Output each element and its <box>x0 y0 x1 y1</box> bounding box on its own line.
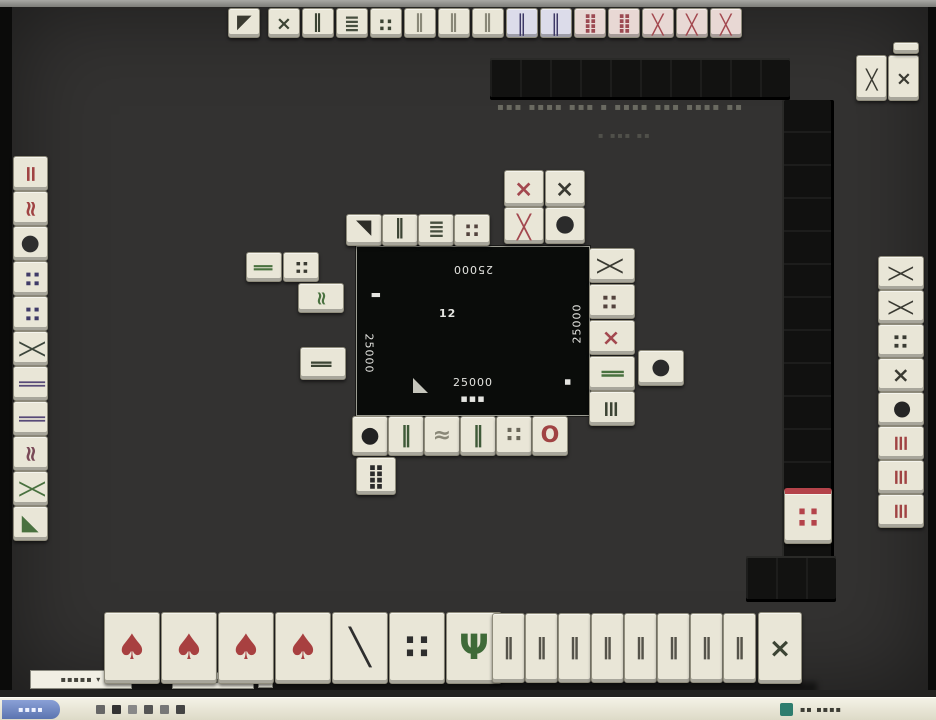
right-hand-tile: ≡ <box>878 426 924 460</box>
tile-face-glyph: ∷ <box>20 271 42 286</box>
tile-face-glyph: = <box>20 164 42 182</box>
discard-tile-left: ‖ <box>300 347 346 380</box>
tile-face-glyph: ∷ <box>798 504 819 534</box>
tile-face-glyph: ╳ <box>891 267 912 280</box>
tile-face-glyph: Ψ <box>459 631 489 666</box>
quicklaunch-icon[interactable] <box>128 705 137 714</box>
opponent-top-hand-tile: ‖ <box>472 8 504 38</box>
tile-face-glyph: ╳ <box>866 69 877 88</box>
tile-face-glyph: ≈ <box>311 290 330 306</box>
taskbar: ▪▪▪▪ ▪▪ ▪▪▪▪ <box>0 697 936 720</box>
top-right-meld-tile: × <box>888 55 919 101</box>
player-hand-tile[interactable]: ♠ <box>275 612 331 684</box>
tile-face-glyph: ‖ <box>536 637 547 659</box>
tile-face-glyph: ∷ <box>601 294 623 309</box>
quicklaunch-icon[interactable] <box>176 705 185 714</box>
tile-face-glyph: ‖ <box>313 14 323 33</box>
player-hand-tile-right[interactable]: ‖ <box>525 613 558 683</box>
discard-tile-left: ∷ <box>283 252 319 282</box>
tile-face-glyph: ‖ <box>473 425 484 447</box>
opponent-top-hand-tile: ◢ <box>228 8 260 38</box>
right-border <box>928 7 936 693</box>
caption-line1: ▪▪▪ ▪▪▪▪ ▪▪▪ ▪ ▪▪▪▪ ▪▪▪ ▪▪▪▪ ▪▪ <box>497 102 744 113</box>
top-right-meld-tile: ╳ <box>856 55 887 101</box>
screen: ▪▪▪ ▪▪▪▪ ▪▪▪ ▪ ▪▪▪▪ ▪▪▪ ▪▪▪▪ ▪▪ ▪ ▪▪▪ ▪▪… <box>0 0 936 720</box>
discard-tile-bottom: O <box>532 416 568 456</box>
score-bottom-player: 25000 <box>453 376 493 389</box>
tile-face-glyph: ‖ <box>635 637 646 659</box>
tile-face-glyph: ‖ <box>449 14 459 33</box>
discard-tile-top: ≣ <box>418 214 454 246</box>
tile-face-glyph: ∷ <box>891 334 912 349</box>
tile-face-glyph: ║ <box>516 14 527 33</box>
opponent-top-hand-tile: ╳ <box>710 8 742 38</box>
player-hand-tile-right[interactable]: ‖ <box>558 613 591 683</box>
window-top-frame <box>0 0 936 7</box>
tile-face-glyph: × <box>601 328 623 346</box>
discard-tile-right: ‖ <box>589 356 635 391</box>
discard-tile-bottom: ⣿ <box>356 457 396 495</box>
wind-marker-icon: ▮ <box>370 292 383 299</box>
tile-face-glyph: ● <box>360 425 379 447</box>
tray-icon[interactable] <box>780 703 793 716</box>
tile-face-glyph: ♠ <box>173 631 204 666</box>
player-hand-tile-right[interactable]: ‖ <box>624 613 657 683</box>
discard-tile-top: ● <box>545 207 585 244</box>
tile-face-glyph: ≣ <box>428 220 445 240</box>
opponent-top-hand-tile: ╳ <box>676 8 708 38</box>
discard-tile-bottom: ‖ <box>388 416 424 456</box>
opponent-top-hand-tile: ║ <box>506 8 538 38</box>
tile-face-glyph: × <box>276 14 292 33</box>
tile-face-glyph: ‖ <box>395 220 405 240</box>
center-score-panel: 25000 ▮ 25000 12 25000 ▪ 25000 ▪▪▪ <box>356 246 590 416</box>
tile-face-glyph: ║ <box>20 412 42 425</box>
wall-top <box>490 58 790 100</box>
discard-tile-top: × <box>545 170 585 207</box>
player-hand-tile-right[interactable]: ‖ <box>591 613 624 683</box>
tile-face-glyph: ╳ <box>891 301 912 314</box>
caption-line2: ▪ ▪▪▪ ▪▪ <box>598 131 652 140</box>
score-right-player: 25000 <box>571 304 584 344</box>
opponent-top-hand-tile: ⣿ <box>608 8 640 38</box>
discard-tile-right: ≡ <box>589 391 635 426</box>
left-hand-tile: ║ <box>13 366 48 401</box>
tile-face-glyph: ≡ <box>890 434 911 452</box>
left-hand-tile: = <box>13 156 48 191</box>
wall-bottom-right <box>746 556 836 602</box>
tile-face-glyph: ≈ <box>433 425 451 447</box>
tile-face-glyph: ♠ <box>230 631 261 666</box>
player-hand-tile-right[interactable]: ‖ <box>723 613 756 683</box>
tile-face-glyph: ‖ <box>701 637 712 659</box>
score-top-player: 25000 <box>453 263 493 276</box>
tile-face-glyph: × <box>769 635 792 662</box>
quicklaunch-icon[interactable] <box>112 705 121 714</box>
left-border <box>0 7 12 693</box>
tile-face-glyph: × <box>555 177 574 200</box>
tile-face-glyph: ‖ <box>503 637 514 659</box>
left-hand-tile: ║ <box>13 401 48 436</box>
tile-face-glyph: ∷ <box>20 306 42 321</box>
tile-face-glyph: ∷ <box>405 631 429 666</box>
tile-face-glyph: ‖ <box>601 368 623 379</box>
tile-face-glyph: ‖ <box>483 14 493 33</box>
opponent-top-hand-tile: ╳ <box>642 8 674 38</box>
score-left-player: 25000 <box>363 334 376 374</box>
discard-tile-right: × <box>589 320 635 355</box>
quicklaunch-icon[interactable] <box>96 705 105 714</box>
tile-face-glyph: ♠ <box>116 631 147 666</box>
player-hand-tile[interactable]: ∷ <box>389 612 445 684</box>
left-hand-tile: ◢ <box>13 506 48 541</box>
quicklaunch-icon[interactable] <box>144 705 153 714</box>
tile-face-glyph: ⣿ <box>617 14 632 33</box>
tile-face-glyph: ♠ <box>287 631 318 666</box>
tile-face-glyph: ⣿ <box>367 464 386 488</box>
discard-tile-top: ╳ <box>504 207 544 244</box>
tile-face-glyph: ‖ <box>569 637 580 659</box>
left-hand-tile: ╳ <box>13 471 48 506</box>
round-counter: 12 <box>439 307 456 320</box>
tile-face-glyph: ≈ <box>20 199 42 217</box>
discard-tile-bottom: ≈ <box>424 416 460 456</box>
discard-tile-top: ∷ <box>454 214 490 246</box>
tile-face-glyph: ⣿ <box>583 14 598 33</box>
right-hand-tile: ╳ <box>878 290 924 324</box>
wind-marker-icon: ▪ <box>560 377 573 385</box>
tile-face-glyph: ∷ <box>506 425 521 447</box>
opponent-top-hand-tile: × <box>268 8 300 38</box>
tile-face-glyph: ≡ <box>890 468 911 486</box>
player-hand-tile[interactable]: ♠ <box>218 612 274 684</box>
tile-face-glyph: ● <box>555 214 575 237</box>
tile-face-glyph: ◣ <box>356 220 371 240</box>
discard-tile-right: ∷ <box>589 284 635 319</box>
player-hand-tile[interactable]: ♠ <box>104 612 160 684</box>
discard-tile-left: ‖ <box>246 252 282 282</box>
right-hand-tile: × <box>878 358 924 392</box>
tile-face-glyph: × <box>890 366 911 384</box>
tile-face-glyph: ∷ <box>291 260 310 273</box>
tile-face-glyph: ╳ <box>720 14 731 33</box>
tile-face-glyph: ╳ <box>686 14 697 33</box>
tile-face-glyph: ◢ <box>19 515 41 532</box>
top-right-meld-tile <box>893 42 919 54</box>
opponent-top-hand-tile: ║ <box>540 8 572 38</box>
left-hand-tile: ∷ <box>13 261 48 296</box>
tile-face-glyph: ╳ <box>517 214 531 237</box>
tile-face-glyph: ● <box>890 400 911 418</box>
tile-face-glyph: × <box>514 177 533 200</box>
opponent-top-hand-tile: ∷ <box>370 8 402 38</box>
player-hand-tile[interactable]: ╲ <box>332 612 388 684</box>
left-hand-tile: ● <box>13 226 48 261</box>
tile-face-glyph: ╳ <box>601 259 623 272</box>
left-hand-tile: ≈ <box>13 191 48 226</box>
tile-face-glyph: ‖ <box>401 425 412 447</box>
tile-face-glyph: ● <box>19 234 41 253</box>
left-hand-tile: ≈ <box>13 436 48 471</box>
tray-clock: ▪▪ ▪▪▪▪ <box>800 705 842 714</box>
right-hand-tile: ∷ <box>878 324 924 358</box>
tile-face-glyph: ∷ <box>465 220 479 240</box>
tile-face-glyph: ◢ <box>237 14 252 33</box>
turn-indicator-icon <box>413 378 428 393</box>
opponent-top-hand-tile: ‖ <box>302 8 334 38</box>
taskbar-divider <box>0 690 936 697</box>
center-sub-text: ▪▪▪ <box>460 392 485 405</box>
right-hand-tile: ≡ <box>878 494 924 528</box>
discard-tile-top: ◣ <box>346 214 382 246</box>
left-hand-tile: ∷ <box>13 296 48 331</box>
tile-face-glyph: ● <box>650 358 672 377</box>
discard-tile-right: ╳ <box>589 248 635 283</box>
right-hand-tile: ● <box>878 392 924 426</box>
tile-face-glyph: ‖ <box>415 14 425 33</box>
tile-face-glyph: ‖ <box>734 637 745 659</box>
discard-tile-bottom: ∷ <box>496 416 532 456</box>
tile-face-glyph: ╳ <box>652 14 663 33</box>
discard-tile-left: ≈ <box>298 283 344 313</box>
tile-face-glyph: ╳ <box>20 482 42 495</box>
taskbar-tray: ▪▪ ▪▪▪▪ <box>736 698 936 720</box>
tile-face-glyph: ║ <box>20 377 42 390</box>
player-hand-tile-right[interactable]: × <box>758 612 802 684</box>
game-area: ▪▪▪ ▪▪▪▪ ▪▪▪ ▪ ▪▪▪▪ ▪▪▪ ▪▪▪▪ ▪▪ ▪ ▪▪▪ ▪▪… <box>12 7 928 690</box>
tile-face-glyph: ∷ <box>379 14 392 33</box>
tile-face-glyph: ≡ <box>890 502 911 520</box>
start-button[interactable]: ▪▪▪▪ <box>2 700 60 719</box>
tile-face-glyph: ‖ <box>255 262 274 272</box>
discard-tile-bottom: ● <box>352 416 388 456</box>
dora-indicator-tile: ∷ <box>784 488 832 544</box>
tile-face-glyph: ‖ <box>668 637 679 659</box>
opponent-top-hand-tile: ‖ <box>438 8 470 38</box>
tile-face-glyph: ‖ <box>313 359 333 369</box>
tile-face-glyph: ≈ <box>20 444 42 462</box>
player-hand-tile-right[interactable]: ‖ <box>690 613 723 683</box>
right-hand-tile: ≡ <box>878 460 924 494</box>
tile-face-glyph: O <box>541 425 560 447</box>
tile-face-glyph: ≣ <box>344 14 360 33</box>
opponent-top-hand-tile: ⣿ <box>574 8 606 38</box>
tile-face-glyph: ‖ <box>602 637 613 659</box>
player-hand-tile-right[interactable]: ‖ <box>657 613 690 683</box>
player-hand-tile[interactable]: ♠ <box>161 612 217 684</box>
opponent-top-hand-tile: ‖ <box>404 8 436 38</box>
left-hand-tile: ╳ <box>13 331 48 366</box>
right-hand-tile: ╳ <box>878 256 924 290</box>
tile-face-glyph: ╲ <box>349 631 370 666</box>
tile-face-glyph: ║ <box>550 14 561 33</box>
opponent-top-hand-tile: ≣ <box>336 8 368 38</box>
discard-tile-top: ‖ <box>382 214 418 246</box>
tile-face-glyph: ╳ <box>20 342 42 355</box>
discard-tile-right: ● <box>638 350 684 386</box>
discard-tile-bottom: ‖ <box>460 416 496 456</box>
quicklaunch-icon[interactable] <box>160 705 169 714</box>
discard-tile-top: × <box>504 170 544 207</box>
player-hand-tile-right[interactable]: ‖ <box>492 613 525 683</box>
tile-face-glyph: × <box>896 69 912 88</box>
tile-face-glyph: ≡ <box>601 399 623 417</box>
